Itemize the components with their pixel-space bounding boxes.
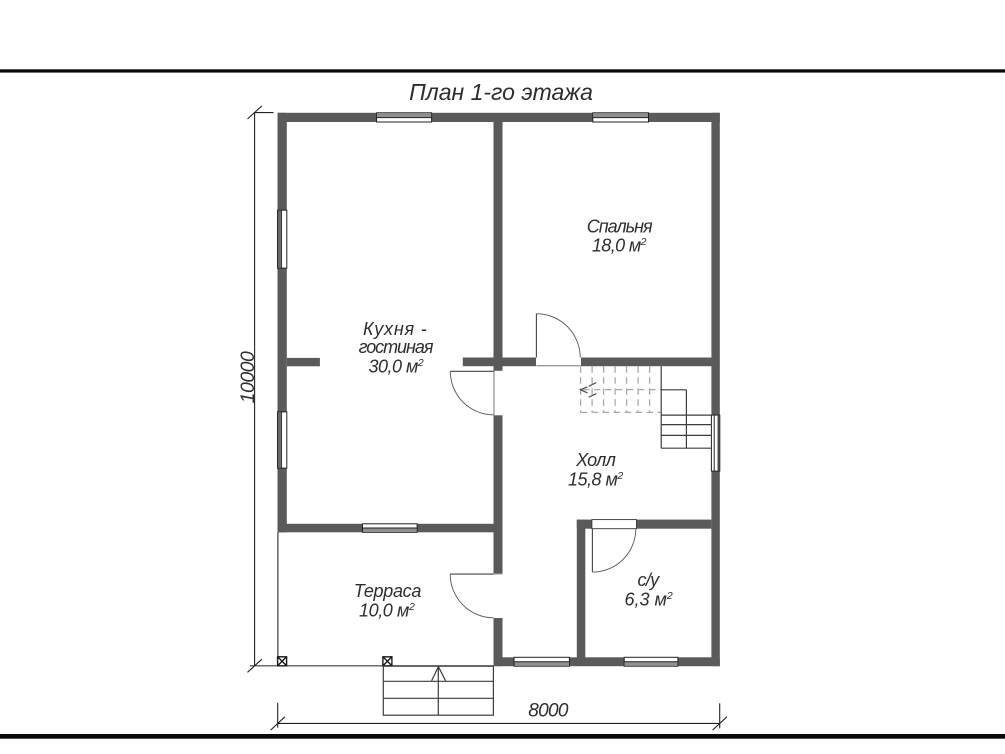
svg-text:Терраса: Терраса bbox=[354, 581, 422, 601]
svg-text:Спальня: Спальня bbox=[587, 217, 653, 237]
svg-text:6,3 м2: 6,3 м2 bbox=[624, 590, 672, 610]
svg-text:30,0 м2: 30,0 м2 bbox=[368, 356, 423, 376]
svg-text:Кухня -: Кухня - bbox=[363, 319, 428, 339]
svg-text:с/у: с/у bbox=[638, 570, 661, 590]
svg-text:15,8 м2: 15,8 м2 bbox=[568, 469, 623, 489]
svg-text:10000: 10000 bbox=[237, 351, 259, 403]
svg-text:18,0 м2: 18,0 м2 bbox=[592, 235, 647, 255]
svg-text:Холл: Холл bbox=[575, 450, 616, 470]
svg-text:8000: 8000 bbox=[528, 701, 569, 722]
svg-text:План 1-го этажа: План 1-го этажа bbox=[409, 79, 593, 105]
svg-text:гостиная: гостиная bbox=[359, 337, 434, 357]
svg-text:10,0 м2: 10,0 м2 bbox=[359, 601, 415, 621]
